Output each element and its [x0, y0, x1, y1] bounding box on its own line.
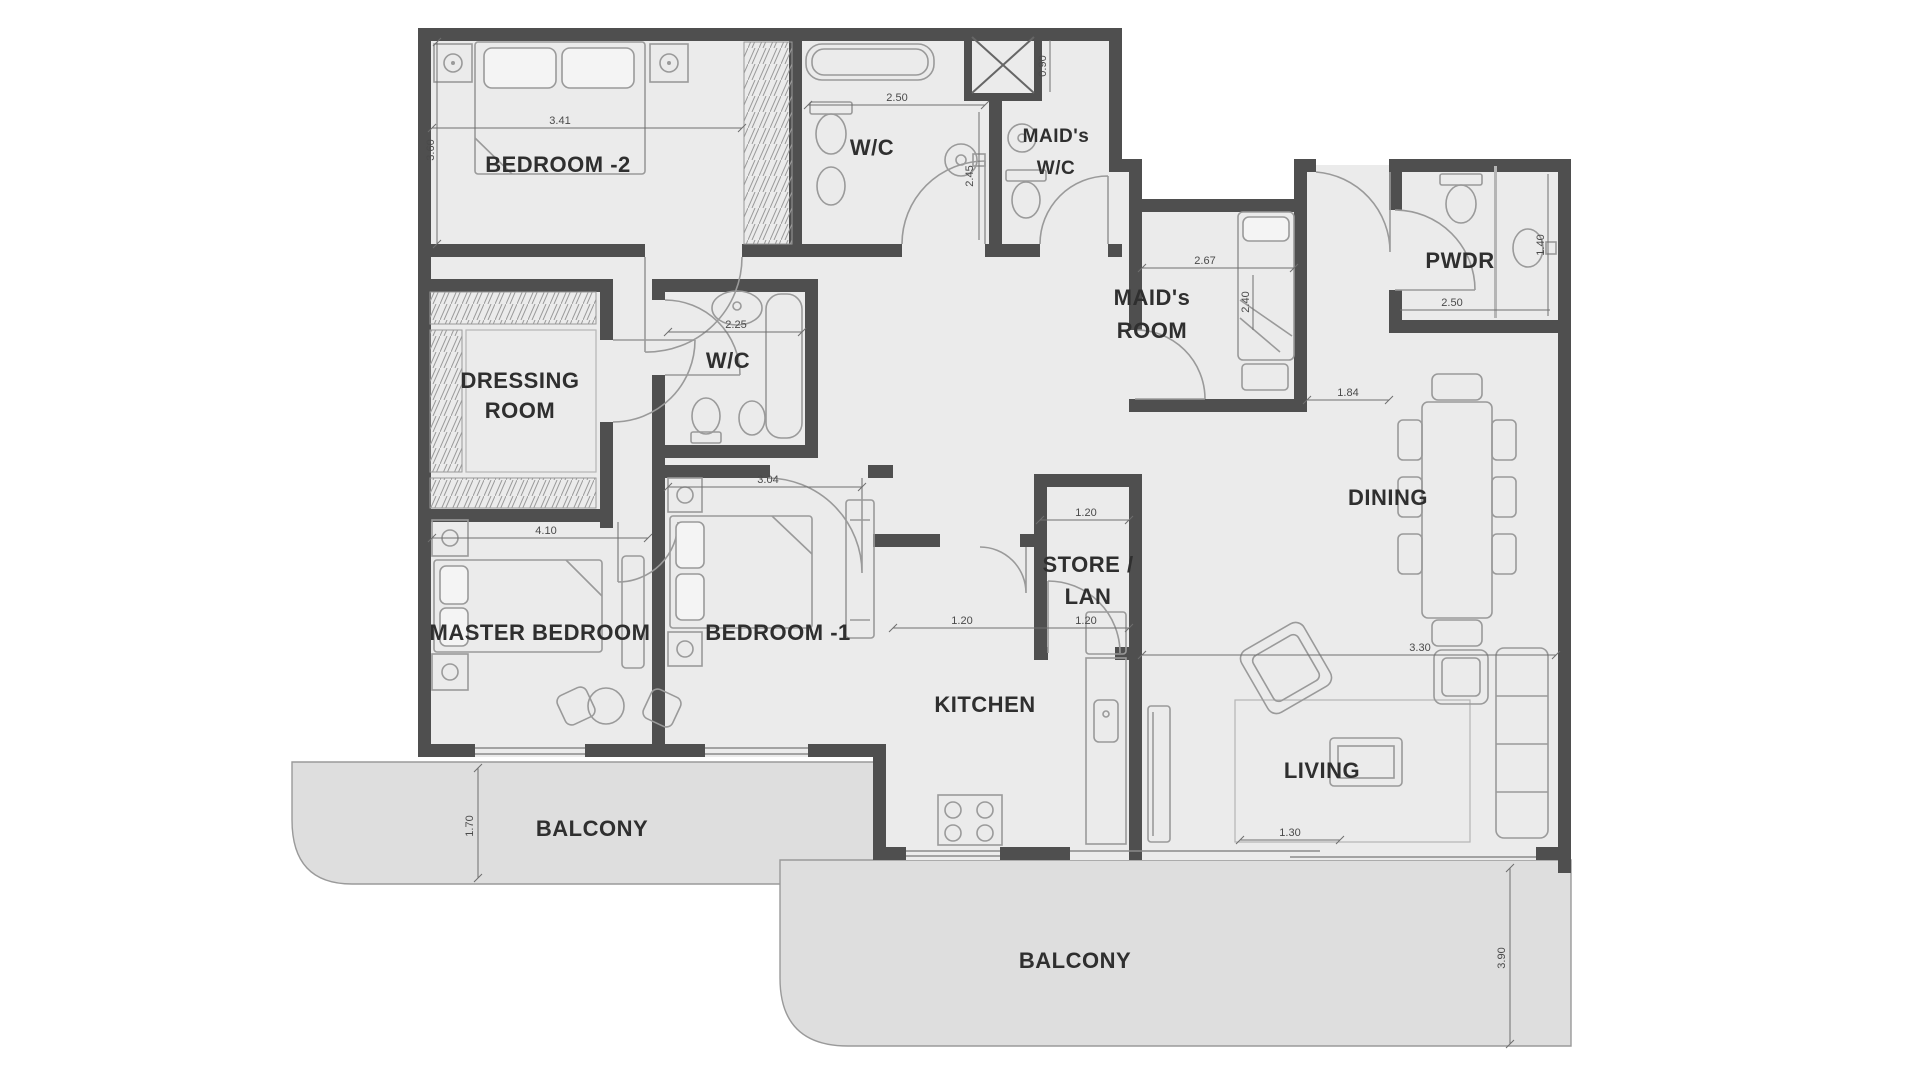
room-label-maids-wc-1: MAID's — [1023, 126, 1090, 147]
dim-pwdr-depth: 1.40 — [1535, 234, 1547, 255]
dim-shaft: 0.90 — [1037, 55, 1049, 76]
room-label-balcony-left: BALCONY — [536, 816, 648, 841]
room-label-bedroom1: BEDROOM -1 — [705, 620, 851, 645]
dim-balcony-bottom-depth: 3.90 — [1496, 947, 1508, 968]
dim-living-door: 1.30 — [1279, 827, 1300, 839]
balcony-bottom-floor — [780, 860, 1571, 1046]
room-label-store-2: LAN — [1065, 584, 1112, 609]
floor-plan: 3.41 3.60 2.50 2.45 0.90 2.67 2.40 1.84 … — [0, 0, 1920, 1080]
room-label-kitchen: KITCHEN — [934, 692, 1035, 717]
dim-entry-corridor: 1.84 — [1337, 387, 1358, 399]
room-label-balcony-bottom: BALCONY — [1019, 948, 1131, 973]
room-label-bedroom2: BEDROOM -2 — [485, 152, 631, 177]
room-label-dining: DINING — [1348, 485, 1428, 510]
dim-maids-room-depth: 2.40 — [1240, 291, 1252, 312]
dim-corridor-a: 1.20 — [951, 615, 972, 627]
room-label-dressing-2: ROOM — [485, 398, 555, 423]
dim-wc-depth: 2.45 — [964, 165, 976, 186]
room-label-pwdr: PWDR — [1425, 248, 1494, 273]
room-label-dressing-1: DRESSING — [461, 368, 580, 393]
wardrobe-hatch — [744, 42, 792, 244]
room-label-wc-mid: W/C — [706, 348, 750, 373]
room-label-living: LIVING — [1284, 758, 1360, 783]
dim-bedroom2-width: 3.41 — [549, 115, 570, 127]
room-label-master-bedroom: MASTER BEDROOM — [430, 620, 651, 645]
dim-wc-width: 2.50 — [886, 92, 907, 104]
room-label-maids-room-2: ROOM — [1117, 318, 1187, 343]
dim-bedroom1-width: 3.04 — [757, 474, 778, 486]
dim-balcony-left-depth: 1.70 — [464, 815, 476, 836]
dim-dining-width: 3.30 — [1409, 642, 1430, 654]
room-label-maids-wc-2: W/C — [1037, 158, 1075, 179]
dim-maids-room-width: 2.67 — [1194, 255, 1215, 267]
dim-master-width: 4.10 — [535, 525, 556, 537]
dim-wc-mid-width: 2.25 — [725, 319, 746, 331]
dim-bedroom2-depth: 3.60 — [425, 139, 437, 160]
dim-store-width: 1.20 — [1075, 507, 1096, 519]
room-label-store-1: STORE / — [1042, 552, 1133, 577]
dim-corridor-b: 1.20 — [1075, 615, 1096, 627]
room-label-wc-top: W/C — [850, 135, 894, 160]
floorplan-page: 3.41 3.60 2.50 2.45 0.90 2.67 2.40 1.84 … — [0, 0, 1920, 1080]
dim-pwdr-width: 2.50 — [1441, 297, 1462, 309]
room-label-maids-room-1: MAID's — [1114, 285, 1191, 310]
